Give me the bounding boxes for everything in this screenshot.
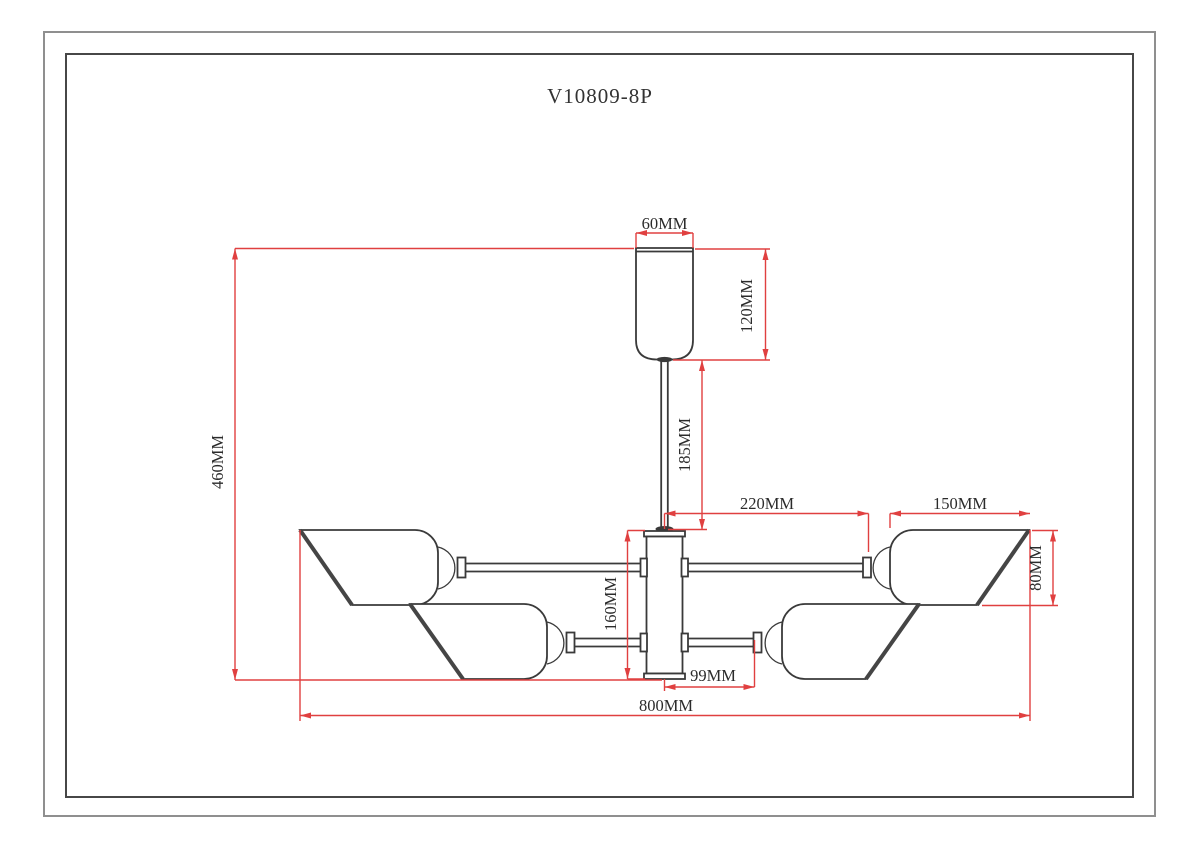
arm-body-joint <box>641 634 648 652</box>
arm-body-joint <box>641 559 648 577</box>
shade-outline <box>782 604 919 679</box>
central-body <box>644 531 685 679</box>
dim-label-upper-arm-reach: 220MM <box>740 494 794 513</box>
bulb-upper-right <box>873 547 890 589</box>
lamp-drawing <box>300 248 1029 679</box>
canopy-stem-collar <box>657 357 673 362</box>
bulb-upper-left <box>438 547 455 589</box>
arm-lower-right <box>682 622 783 664</box>
drawing-sheet: V10809-8P <box>0 0 1200 848</box>
arm-body-joint <box>682 634 689 652</box>
inner-border-frame <box>66 54 1133 797</box>
bulb-lower-right <box>765 622 782 664</box>
bulb-socket <box>458 558 466 578</box>
canopy-outline <box>636 248 693 360</box>
dim-label-lower-arm-reach: 99MM <box>690 666 736 685</box>
shade-lower-left <box>410 604 547 679</box>
stem <box>656 360 674 532</box>
dim-label-shade-width: 150MM <box>933 494 987 513</box>
body-bottom-cap <box>644 674 685 680</box>
outer-border-frame <box>44 32 1155 816</box>
dim-label-body-height: 160MM <box>601 577 620 631</box>
technical-drawing-canvas: V10809-8P <box>0 0 1200 848</box>
dim-label-overall-width: 800MM <box>639 696 693 715</box>
shade-lower-right <box>782 604 919 679</box>
dimension-annotations: 60MM 120MM 185MM 460MM 220MM 150MM 80MM … <box>208 214 1058 721</box>
dim-label-shade-height: 80MM <box>1026 545 1045 591</box>
dim-label-canopy-width: 60MM <box>642 214 688 233</box>
bulb-socket <box>567 633 575 653</box>
body-column <box>647 537 683 674</box>
dim-label-canopy-height: 120MM <box>737 279 756 333</box>
arm-upper-right <box>682 547 891 589</box>
dimension-labels: 60MM 120MM 185MM 460MM 220MM 150MM 80MM … <box>208 214 1045 715</box>
dim-label-stem-length: 185MM <box>675 418 694 472</box>
shade-upper-right <box>890 530 1029 605</box>
shade-outline <box>890 530 1029 605</box>
arm-lower-left <box>547 622 647 664</box>
bulb-lower-left <box>547 622 564 664</box>
canopy <box>636 248 693 362</box>
shade-upper-left <box>300 530 438 605</box>
bulb-socket <box>863 558 871 578</box>
arm-body-joint <box>682 559 689 577</box>
shade-outline <box>300 530 438 605</box>
shade-outline <box>410 604 547 679</box>
dim-label-overall-height: 460MM <box>208 435 227 489</box>
drawing-title: V10809-8P <box>547 84 653 108</box>
